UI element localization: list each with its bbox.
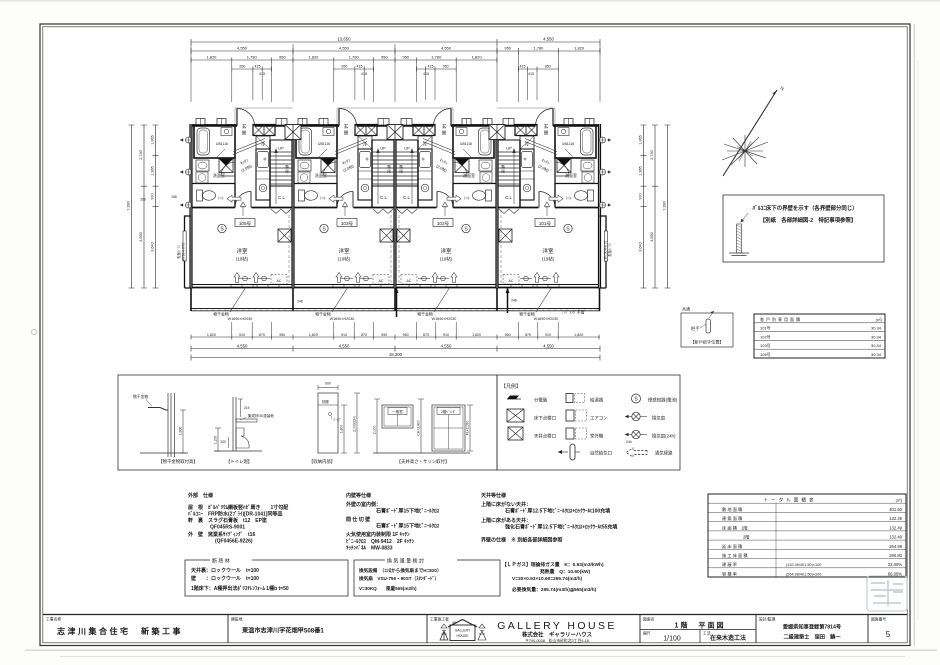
svg-text:自然給気口: 自然給気口: [590, 450, 612, 457]
svg-text:248: 248: [511, 299, 517, 303]
svg-text:1,365: 1,365: [639, 166, 643, 176]
svg-text:1,100: 1,100: [214, 436, 218, 444]
svg-text:AC: AC: [509, 279, 514, 283]
svg-text:UB1116: UB1116: [460, 142, 472, 146]
svg-text:3,640: 3,640: [639, 242, 643, 252]
svg-text:1,780: 1,780: [533, 45, 544, 50]
svg-text:愛媛県知事登録第7814号: 愛媛県知事登録第7814号: [783, 623, 841, 631]
svg-text:102号: 102号: [760, 333, 771, 339]
svg-text:950: 950: [279, 333, 285, 337]
svg-text:物干金物: 物干金物: [213, 312, 229, 317]
svg-text:△ﾍﾞﾗﾝﾀﾞ手摺: △ﾍﾞﾗﾝﾀﾞ手摺: [562, 310, 585, 315]
svg-text:910: 910: [151, 193, 155, 199]
svg-text:階: 階: [387, 164, 391, 169]
svg-text:【物干金物取付高】: 【物干金物取付高】: [158, 458, 198, 465]
svg-text:950: 950: [403, 333, 409, 337]
svg-text:950: 950: [504, 45, 511, 50]
svg-text:V=30×0.93×10.60=295.74(m3/h): V=30×0.93×10.60=295.74(m3/h): [512, 576, 583, 582]
svg-text:UB1116: UB1116: [216, 142, 228, 146]
svg-text:冷: 冷: [423, 141, 427, 147]
svg-text:工事名称: 工事名称: [46, 617, 61, 622]
svg-text:株式会社 ギャラリーハウス: 株式会社 ギャラリーハウス: [522, 631, 592, 639]
svg-text:天井等仕様: 天井等仕様: [481, 492, 507, 499]
svg-text:4,550: 4,550: [543, 36, 554, 41]
svg-text:910: 910: [639, 193, 643, 199]
svg-text:132.49: 132.49: [889, 525, 902, 530]
svg-text:415: 415: [520, 65, 526, 69]
svg-text:1,365: 1,365: [151, 135, 155, 145]
svg-text:ﾄｲﾚ: ﾄｲﾚ: [566, 197, 572, 201]
svg-text:軒 裏 スラグ石膏板 t12 EP塗: 軒 裏 スラグ石膏板 t12 EP塗: [188, 517, 267, 524]
svg-text:(10帖): (10帖): [338, 256, 351, 263]
svg-text:1,820: 1,820: [574, 333, 583, 337]
svg-text:870: 870: [525, 333, 531, 337]
svg-text:415: 415: [255, 65, 261, 69]
svg-text:段: 段: [285, 169, 289, 174]
svg-text:7,280: 7,280: [663, 201, 667, 211]
svg-text:把手: 把手: [691, 325, 699, 332]
svg-text:洋室: 洋室: [338, 247, 350, 255]
svg-text:階: 階: [285, 164, 289, 169]
svg-text:415: 415: [528, 72, 534, 76]
svg-text:30.34: 30.34: [871, 352, 882, 357]
svg-text:一般窓: 一般窓: [392, 409, 403, 414]
svg-text:【天井高さ・サッシ取付】: 【天井高さ・サッシ取付】: [397, 458, 450, 465]
svg-text:ﾊﾟｲﾌﾟ: ﾊﾟｲﾌﾟ: [333, 417, 341, 422]
svg-text:【トイレ廻】: 【トイレ廻】: [226, 458, 252, 465]
svg-text:【別紙 各部詳細図-2 特記事項参照】: 【別紙 各部詳細図-2 特記事項参照】: [760, 216, 856, 224]
svg-text:1,800: 1,800: [179, 427, 183, 436]
svg-text:600: 600: [325, 382, 331, 386]
svg-text:冷: 冷: [525, 141, 529, 147]
svg-text:段: 段: [399, 169, 403, 174]
svg-text:C.L: C.L: [278, 195, 285, 200]
svg-text:天井点検口: 天井点検口: [534, 433, 556, 440]
svg-text:1,365: 1,365: [639, 135, 643, 145]
svg-text:30.34: 30.34: [871, 326, 882, 331]
svg-text:GALLERY: GALLERY: [455, 629, 471, 633]
svg-text:950: 950: [381, 54, 388, 59]
svg-text:FL+2,050: FL+2,050: [466, 421, 470, 436]
svg-text:4,550: 4,550: [237, 343, 248, 348]
svg-text:床下点検口: 床下点検口: [534, 415, 556, 422]
svg-text:ﾊﾞﾙｺﾆｰ FRP防水(2ﾌﾟﾗｲ)[DR-1041]同等: ﾊﾞﾙｺﾆｰ FRP防水(2ﾌﾟﾗｲ)[DR-1041]同等品: [187, 511, 282, 518]
svg-text:階: 階: [399, 164, 403, 169]
svg-text:(264.98/401.50)×100: (264.98/401.50)×100: [786, 572, 821, 576]
svg-text:1,780: 1,780: [247, 54, 258, 59]
svg-text:UB1116: UB1116: [562, 142, 574, 146]
svg-text:950: 950: [239, 65, 245, 69]
svg-text:物干金物: 物干金物: [315, 312, 331, 317]
svg-text:248: 248: [297, 300, 303, 304]
svg-text:105号: 105号: [760, 351, 771, 357]
svg-text:24h: 24h: [626, 440, 632, 444]
svg-text:2,003(CH): 2,003(CH): [353, 416, 357, 432]
svg-text:トータル面積表: トータル面積表: [763, 497, 816, 504]
svg-text:870: 870: [259, 333, 265, 337]
svg-text:AC: AC: [407, 279, 412, 283]
svg-text:W1690×H2030: W1690×H2030: [228, 317, 253, 321]
svg-text:発熱量 Q：10.60(kW): 発熱量 Q：10.60(kW): [539, 568, 591, 575]
svg-text:(132.49/401.50)×100: (132.49/401.50)×100: [786, 563, 821, 567]
svg-text:1,820: 1,820: [574, 45, 585, 50]
svg-text:HOUSE: HOUSE: [456, 634, 469, 638]
svg-text:容 積 率: 容 積 率: [722, 570, 737, 577]
svg-text:UB1116: UB1116: [318, 142, 330, 146]
svg-text:二級建築士 窪田 鎮一: 二級建築士 窪田 鎮一: [783, 633, 841, 641]
svg-text:870: 870: [361, 333, 367, 337]
svg-text:2階: 2階: [722, 534, 750, 541]
svg-text:天井裏：ロックウール t=100: 天井裏：ロックウール t=100: [191, 567, 259, 574]
svg-text:ﾄｲﾚ: ﾄｲﾚ: [464, 197, 470, 201]
svg-text:33.00%: 33.00%: [888, 562, 902, 567]
svg-text:200: 200: [220, 440, 226, 444]
svg-text:型板ｶﾞﾗｽ: 型板ｶﾞﾗｽ: [176, 245, 181, 259]
svg-text:2階ﾍﾞﾗﾝﾀﾞ: 2階ﾍﾞﾗﾝﾀﾞ: [441, 409, 456, 414]
svg-text:給湯器: 給湯器: [590, 397, 604, 404]
svg-text:段: 段: [387, 169, 391, 174]
svg-text:UP: UP: [404, 146, 410, 151]
svg-text:石膏ﾎﾞｰﾄﾞ厚12.5下地ﾋﾞﾆｰﾙｸﾛｽ+ﾛｯｸｳｰﾙt: 石膏ﾎﾞｰﾄﾞ厚12.5下地ﾋﾞﾆｰﾙｸﾛｽ+ﾛｯｸｳｰﾙt100充填: [504, 508, 610, 515]
svg-text:図面名: 図面名: [643, 617, 655, 622]
svg-text:石膏ﾎﾞｰﾄﾞ厚15下地ﾋﾞﾆｰﾙｸﾛｽ: 石膏ﾎﾞｰﾄﾞ厚15下地ﾋﾞﾆｰﾙｸﾛｽ: [375, 508, 440, 515]
svg-text:換 気 風 量 検 討: 換 気 風 量 検 討: [387, 558, 424, 565]
svg-text:W1690×H2030: W1690×H2030: [534, 317, 559, 321]
svg-text:132.49: 132.49: [889, 535, 902, 540]
svg-text:264.98: 264.98: [889, 544, 902, 549]
svg-text:玄: 玄: [242, 123, 247, 130]
svg-text:950: 950: [545, 65, 551, 69]
svg-text:910: 910: [443, 333, 449, 337]
svg-text:外部 仕様: 外部 仕様: [188, 492, 214, 499]
svg-text:工法: 工法: [703, 631, 711, 636]
svg-text:敷 地 面 積: 敷 地 面 積: [722, 506, 743, 513]
svg-text:4,550: 4,550: [139, 232, 143, 242]
svg-text:分電盤: 分電盤: [534, 397, 548, 404]
svg-text:強化石膏ﾎﾞｰﾄﾞ厚12.5下地ﾋﾞﾆｰﾙｸﾛｽ+ﾛｯｸｳｰ: 強化石膏ﾎﾞｰﾄﾞ厚12.5下地ﾋﾞﾆｰﾙｸﾛｽ+ﾛｯｸｳｰﾙt55充填: [505, 524, 617, 531]
svg-text:界壁の仕様 ※ 別紙各部詳細図参照: 界壁の仕様 ※ 別紙各部詳細図参照: [481, 537, 562, 544]
svg-text:施 工 床 面 積: 施 工 床 面 積: [722, 552, 748, 559]
svg-text:950: 950: [505, 333, 511, 337]
svg-text:950: 950: [341, 65, 347, 69]
svg-text:設計/監理: 設計/監理: [759, 617, 775, 622]
svg-text:132.49: 132.49: [889, 516, 902, 521]
svg-text:型板ｶﾞﾗｽ: 型板ｶﾞﾗｽ: [607, 243, 612, 257]
svg-text:4,550: 4,550: [441, 45, 452, 50]
svg-text:(10帖): (10帖): [236, 256, 249, 263]
svg-text:ﾄｲﾚ: ﾄｲﾚ: [218, 197, 224, 201]
svg-text:2,730: 2,730: [139, 150, 143, 160]
svg-text:1階床下：A種押出法ﾎﾟﾘｽﾁﾚﾝﾌｫｰﾑ 1種b t=50: 1階床下：A種押出法ﾎﾟﾘｽﾁﾚﾝﾌｫｰﾑ 1種b t=50: [191, 585, 289, 592]
svg-text:ﾋﾞﾆｰﾙｸﾛｽ QM-9412 2F ｷｯﾁﾝ: ﾋﾞﾆｰﾙｸﾛｽ QM-9412 2F ｷｯﾁﾝ: [346, 538, 415, 545]
svg-text:4,550: 4,550: [441, 343, 452, 348]
svg-text:215: 215: [244, 406, 250, 410]
svg-text:屋 根 ｶﾞﾙﾊﾞﾘｳﾑ鋼板竪ﾊｾﾞ葺き 1寸勾配: 屋 根 ｶﾞﾙﾊﾞﾘｳﾑ鋼板竪ﾊｾﾞ葺き 1寸勾配: [188, 504, 288, 511]
svg-text:950: 950: [279, 54, 286, 59]
svg-text:ﾊﾞﾙｺﾆ床下の界壁を示す（各界壁部分同じ）: ﾊﾞﾙｺﾆ床下の界壁を示す（各界壁部分同じ）: [751, 204, 857, 212]
svg-text:W1690×H2030: W1690×H2030: [432, 317, 457, 321]
svg-text:玄: 玄: [344, 123, 349, 130]
svg-text:30.34: 30.34: [871, 343, 882, 348]
svg-text:志津川集合住宅 新築工事: 志津川集合住宅 新築工事: [57, 626, 183, 636]
svg-text:各戸別専用面積: 各戸別専用面積: [760, 316, 802, 322]
svg-text:建 蔽 率: 建 蔽 率: [722, 561, 737, 568]
svg-text:玄: 玄: [544, 123, 549, 130]
svg-text:外壁の室内側：: 外壁の室内側：: [346, 501, 381, 508]
svg-text:冷: 冷: [363, 141, 367, 147]
svg-text:V=30KQ 風量565(m3/h): V=30KQ 風量565(m3/h): [359, 585, 417, 592]
svg-text:2,730: 2,730: [650, 150, 654, 160]
svg-text:階: 階: [501, 164, 505, 169]
svg-text:1,365: 1,365: [151, 166, 155, 176]
svg-text:通気経路: 通気経路: [655, 450, 673, 457]
svg-text:上階に床がある天井：: 上階に床がある天井：: [481, 517, 531, 524]
svg-text:18,200: 18,200: [389, 352, 403, 357]
svg-text:950: 950: [381, 333, 387, 337]
svg-text:1,820: 1,820: [472, 54, 483, 59]
svg-text:UP: UP: [380, 146, 386, 151]
svg-text:建設地: 建設地: [231, 617, 243, 622]
svg-text:4,550: 4,550: [339, 45, 350, 50]
svg-text:13,650: 13,650: [337, 36, 351, 41]
svg-text:工事施工者: 工事施工者: [430, 617, 449, 622]
svg-text:煙感知器(電池): 煙感知器(電池): [648, 397, 678, 404]
svg-text:物干金物: 物干金物: [519, 312, 535, 317]
svg-text:QF045RS-9001: QF045RS-9001: [210, 525, 245, 531]
svg-text:2,000: 2,000: [373, 426, 377, 435]
svg-text:間 仕 切 壁: 間 仕 切 壁: [346, 516, 370, 523]
svg-text:換気扇(24h): 換気扇(24h): [652, 433, 676, 440]
svg-text:換気扇 VSU-755・90ST（ｽﾀﾝﾀﾞｰﾄﾞ）: 換気扇 VSU-755・90ST（ｽﾀﾝﾀﾞｰﾄﾞ）: [359, 575, 439, 582]
svg-text:【凡例】: 【凡例】: [501, 383, 521, 390]
svg-text:火気使用室内装制限 1F ｷｯﾁﾝ: 火気使用室内装制限 1F ｷｯﾁﾝ: [346, 531, 410, 538]
svg-text:断 熱 材: 断 熱 材: [212, 558, 230, 565]
svg-text:洋室: 洋室: [236, 247, 248, 255]
svg-text:(㎡): (㎡): [876, 317, 883, 322]
svg-text:1,820: 1,820: [308, 54, 319, 59]
svg-text:103号: 103号: [760, 342, 771, 348]
svg-text:冷: 冷: [261, 141, 265, 147]
svg-text:1,780: 1,780: [431, 54, 442, 59]
svg-text:図面番号: 図面番号: [871, 617, 886, 622]
svg-text:枕棚: 枕棚: [322, 399, 329, 404]
svg-text:4,550: 4,550: [650, 232, 654, 242]
svg-text:延 床 面 積: 延 床 面 積: [722, 543, 743, 550]
svg-text:4,550: 4,550: [237, 45, 248, 50]
svg-text:上階に床がない天井：: 上階に床がない天井：: [481, 501, 531, 508]
svg-text:4,550: 4,550: [543, 343, 554, 348]
svg-text:換気設備 （ｺﾝﾛから換気扇までH=820）: 換気設備 （ｺﾝﾛから換気扇までH=820）: [359, 567, 442, 574]
svg-text:(10帖): (10帖): [440, 256, 453, 263]
svg-text:30.34: 30.34: [871, 334, 882, 339]
svg-text:415: 415: [428, 65, 434, 69]
svg-text:建 築 面 積: 建 築 面 積: [722, 515, 743, 522]
svg-text:W790×H770: W790×H770: [604, 241, 608, 260]
svg-text:(10帖): (10帖): [542, 256, 555, 263]
svg-text:415: 415: [259, 72, 265, 76]
svg-text:415: 415: [361, 72, 367, 76]
svg-text:W1690×H2030: W1690×H2030: [330, 317, 355, 321]
svg-text:(QF0456E-9226): (QF0456E-9226): [215, 539, 253, 545]
svg-text:415: 415: [423, 72, 429, 76]
svg-text:ｷｯﾁﾝﾊﾟﾈﾙ MW-0833: ｷｯﾁﾝﾊﾟﾈﾙ MW-0833: [346, 545, 393, 552]
svg-text:洋室: 洋室: [440, 247, 452, 255]
svg-text:415: 415: [357, 65, 363, 69]
svg-text:7,280: 7,280: [127, 201, 131, 211]
svg-text:3,640: 3,640: [151, 242, 155, 252]
svg-text:共通: 共通: [682, 306, 690, 312]
svg-text:290.80: 290.80: [889, 553, 902, 558]
svg-text:1階 平面図: 1階 平面図: [675, 621, 726, 630]
svg-text:1,820: 1,820: [309, 333, 318, 337]
svg-text:1,780: 1,780: [349, 54, 360, 59]
svg-text:5: 5: [886, 630, 891, 639]
svg-text:ﾄｲﾚ: ﾄｲﾚ: [320, 197, 326, 201]
svg-text:〒790-0038 松山市砂町北3丁目9-18: 〒790-0038 松山市砂町北3丁目9-18: [525, 638, 589, 643]
svg-text:物干金物: 物干金物: [133, 394, 148, 399]
svg-text:内壁等仕様: 内壁等仕様: [346, 492, 372, 499]
svg-text:AC: AC: [277, 279, 282, 283]
svg-text:910: 910: [239, 333, 245, 337]
svg-text:CH=2,400: CH=2,400: [417, 420, 421, 435]
svg-text:【ＬＰガス】理論排ガス量 K：0.93(m3/kWh): 【ＬＰガス】理論排ガス量 K：0.93(m3/kWh): [502, 561, 604, 568]
svg-text:UP: UP: [278, 146, 284, 151]
svg-text:1,820: 1,820: [472, 333, 481, 337]
svg-text:段: 段: [501, 169, 505, 174]
svg-text:GALLERY HOUSE: GALLERY HOUSE: [497, 620, 617, 632]
svg-text:洋室: 洋室: [542, 247, 554, 255]
svg-text:外 壁 窯業系ｻｲﾃﾞｨﾝｸﾞ t16: 外 壁 窯業系ｻｲﾃﾞｨﾝｸﾞ t16: [188, 531, 255, 538]
svg-text:【収納内部】: 【収納内部】: [309, 458, 335, 465]
svg-text:C.L: C.L: [505, 195, 512, 200]
svg-text:910: 910: [341, 333, 347, 337]
svg-text:1,800: 1,800: [340, 425, 344, 434]
svg-text:石膏ﾎﾞｰﾄﾞ厚15下地ﾋﾞﾆｰﾙｸﾛｽ: 石膏ﾎﾞｰﾄﾞ厚15下地ﾋﾞﾆｰﾙｸﾛｽ: [375, 523, 440, 530]
svg-text:縮尺: 縮尺: [643, 631, 651, 636]
svg-text:室外機: 室外機: [590, 433, 604, 440]
svg-text:集成材t30塗装他: 集成材t30塗装他: [248, 413, 274, 418]
svg-text:AC: AC: [379, 279, 384, 283]
svg-text:1,820: 1,820: [206, 54, 217, 59]
svg-text:東温市志津川字花畑甲508番1: 東温市志津川字花畑甲508番1: [242, 627, 324, 635]
svg-text:268: 268: [140, 198, 146, 202]
svg-text:950: 950: [402, 54, 409, 59]
svg-text:床 面 積 1階: 床 面 積 1階: [722, 524, 748, 531]
svg-text:W790×H770: W790×H770: [182, 243, 186, 262]
svg-text:【新戸把手位置】: 【新戸把手位置】: [690, 339, 724, 346]
svg-text:(㎡): (㎡): [896, 498, 903, 503]
svg-text:玄: 玄: [442, 123, 447, 130]
svg-text:C.L: C.L: [403, 195, 410, 200]
svg-text:在来木造工法: 在来木造工法: [710, 634, 746, 642]
svg-text:必要換気量：295.74(m3/h)≦565(m3/h): 必要換気量：295.74(m3/h)≦565(m3/h): [511, 586, 597, 593]
svg-text:1,820: 1,820: [207, 333, 216, 337]
svg-text:物干金物: 物干金物: [417, 312, 433, 317]
svg-text:401.50: 401.50: [889, 507, 902, 512]
svg-text:UP: UP: [506, 146, 512, 151]
svg-text:1/100: 1/100: [663, 636, 681, 643]
svg-text:268: 268: [171, 195, 177, 199]
svg-text:4,550: 4,550: [339, 343, 350, 348]
svg-text:換気扇: 換気扇: [652, 415, 665, 422]
svg-text:C.L: C.L: [380, 195, 387, 200]
svg-text:壁 ：ロックウール t=100: 壁 ：ロックウール t=100: [190, 575, 259, 582]
svg-text:910: 910: [545, 333, 551, 337]
svg-text:950: 950: [443, 65, 449, 69]
svg-text:870: 870: [423, 333, 429, 337]
svg-text:101号: 101号: [760, 325, 771, 331]
